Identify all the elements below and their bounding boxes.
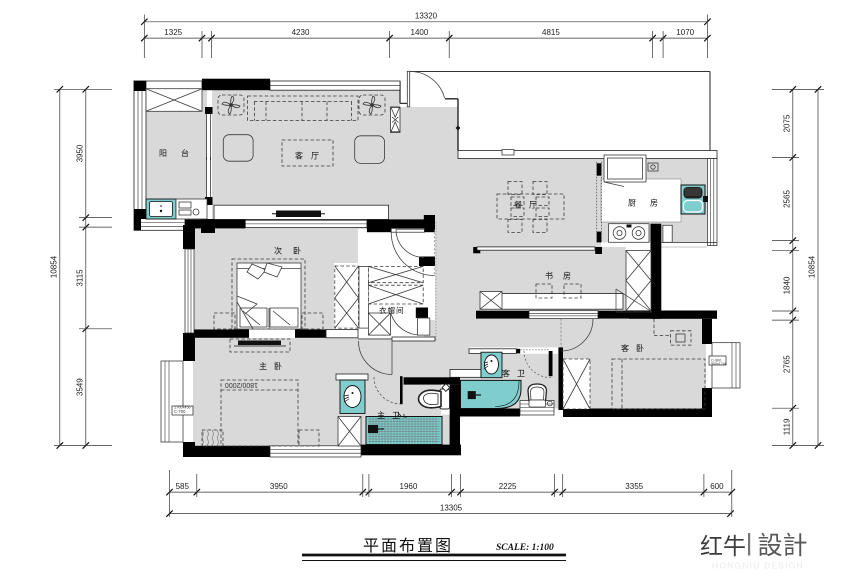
svg-text:2225: 2225 <box>499 482 517 491</box>
svg-text:客厅: 客厅 <box>295 151 327 161</box>
svg-text:红牛: 红牛 <box>700 533 746 559</box>
svg-text:3355: 3355 <box>625 482 643 491</box>
svg-text:餐厅: 餐厅 <box>514 201 544 210</box>
svg-text:設計: 設計 <box>758 532 808 560</box>
svg-text:C-700: C-700 <box>174 409 186 414</box>
svg-text:主卫: 主卫 <box>377 410 407 420</box>
svg-text:2565: 2565 <box>783 190 792 208</box>
svg-text:阳台: 阳台 <box>159 148 203 158</box>
svg-text:书房: 书房 <box>545 271 581 281</box>
svg-text:平面布置图: 平面布置图 <box>363 537 453 555</box>
svg-text:1700x450: 1700x450 <box>174 406 191 410</box>
svg-text:4815: 4815 <box>542 28 560 37</box>
svg-text:10854: 10854 <box>808 255 817 278</box>
svg-text:3115: 3115 <box>76 269 85 287</box>
svg-text:HONGNIU DESIGN: HONGNIU DESIGN <box>712 561 804 571</box>
svg-text:主卧: 主卧 <box>259 361 289 371</box>
svg-text:585: 585 <box>176 482 190 491</box>
svg-text:客卫: 客卫 <box>502 368 532 378</box>
svg-text:1400: 1400 <box>411 28 429 37</box>
svg-text:2765: 2765 <box>783 355 792 373</box>
svg-text:4230: 4230 <box>292 28 310 37</box>
svg-text:1800/2000: 1800/2000 <box>225 381 258 388</box>
svg-text:900x1740: 900x1740 <box>711 362 727 366</box>
svg-text:厨房: 厨房 <box>628 198 672 208</box>
svg-text:次卧: 次卧 <box>274 246 312 256</box>
svg-text:1960: 1960 <box>400 482 418 491</box>
svg-text:13305: 13305 <box>440 503 463 512</box>
svg-text:客卧: 客卧 <box>621 343 651 353</box>
svg-text:1070: 1070 <box>676 28 694 37</box>
svg-text:10854: 10854 <box>50 255 59 278</box>
svg-text:600: 600 <box>710 482 724 491</box>
svg-text:SCALE: 1:100: SCALE: 1:100 <box>496 543 554 553</box>
svg-text:1119: 1119 <box>783 418 792 435</box>
svg-text:3950: 3950 <box>270 482 288 491</box>
svg-text:1840: 1840 <box>783 276 792 294</box>
svg-text:2075: 2075 <box>783 114 792 132</box>
svg-text:13320: 13320 <box>415 12 438 21</box>
svg-text:3549: 3549 <box>76 378 85 396</box>
svg-text:衣帽间: 衣帽间 <box>379 305 405 315</box>
svg-text:1325: 1325 <box>164 28 182 37</box>
svg-text:3950: 3950 <box>76 144 85 162</box>
